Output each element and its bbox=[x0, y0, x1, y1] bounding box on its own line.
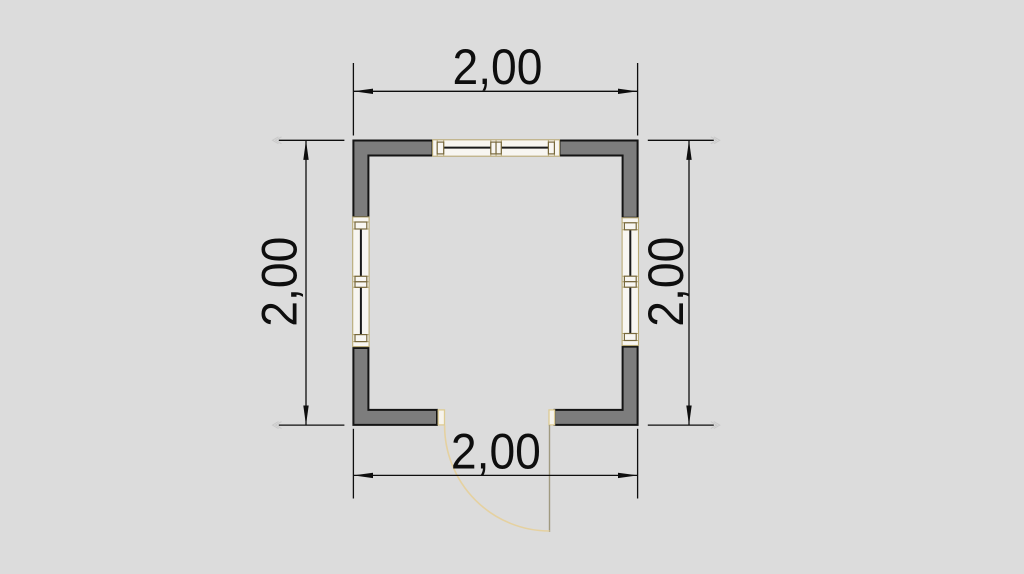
svg-text:2,00: 2,00 bbox=[638, 237, 694, 327]
svg-text:2,00: 2,00 bbox=[451, 424, 541, 480]
svg-text:2,00: 2,00 bbox=[252, 237, 308, 327]
svg-text:2,00: 2,00 bbox=[453, 39, 543, 95]
